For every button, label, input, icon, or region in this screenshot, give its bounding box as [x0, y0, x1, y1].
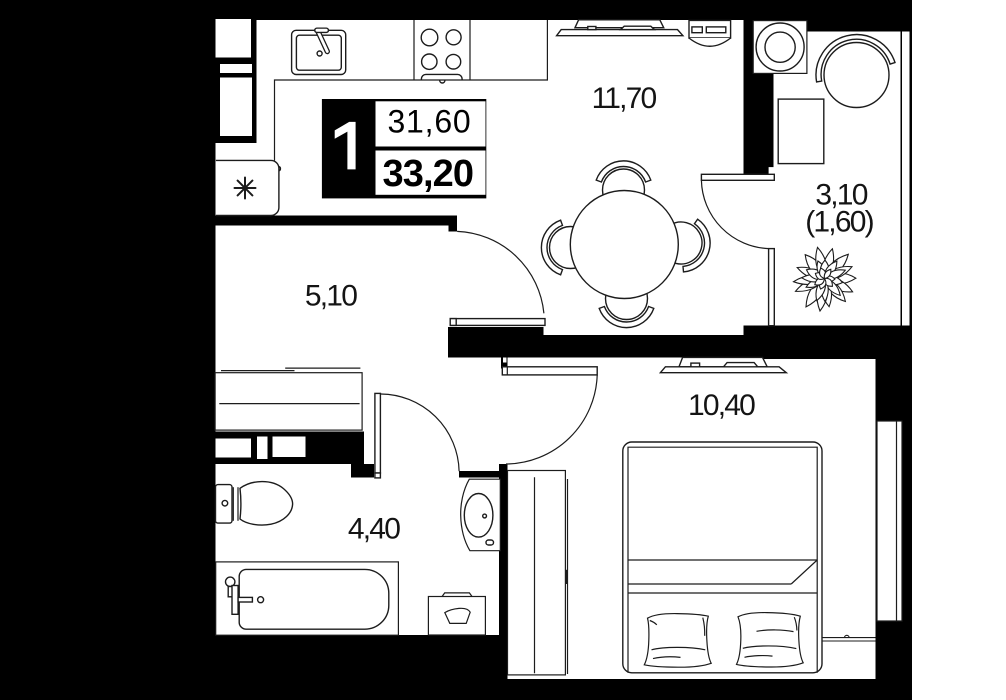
svg-text:33,20: 33,20: [383, 153, 474, 195]
svg-text:11,70: 11,70: [592, 82, 657, 115]
svg-text:5,10: 5,10: [305, 279, 357, 312]
svg-text:4,40: 4,40: [348, 513, 400, 546]
svg-text:10,40: 10,40: [688, 389, 755, 422]
svg-text:31,60: 31,60: [387, 104, 471, 140]
svg-text:(1,60): (1,60): [805, 206, 873, 239]
